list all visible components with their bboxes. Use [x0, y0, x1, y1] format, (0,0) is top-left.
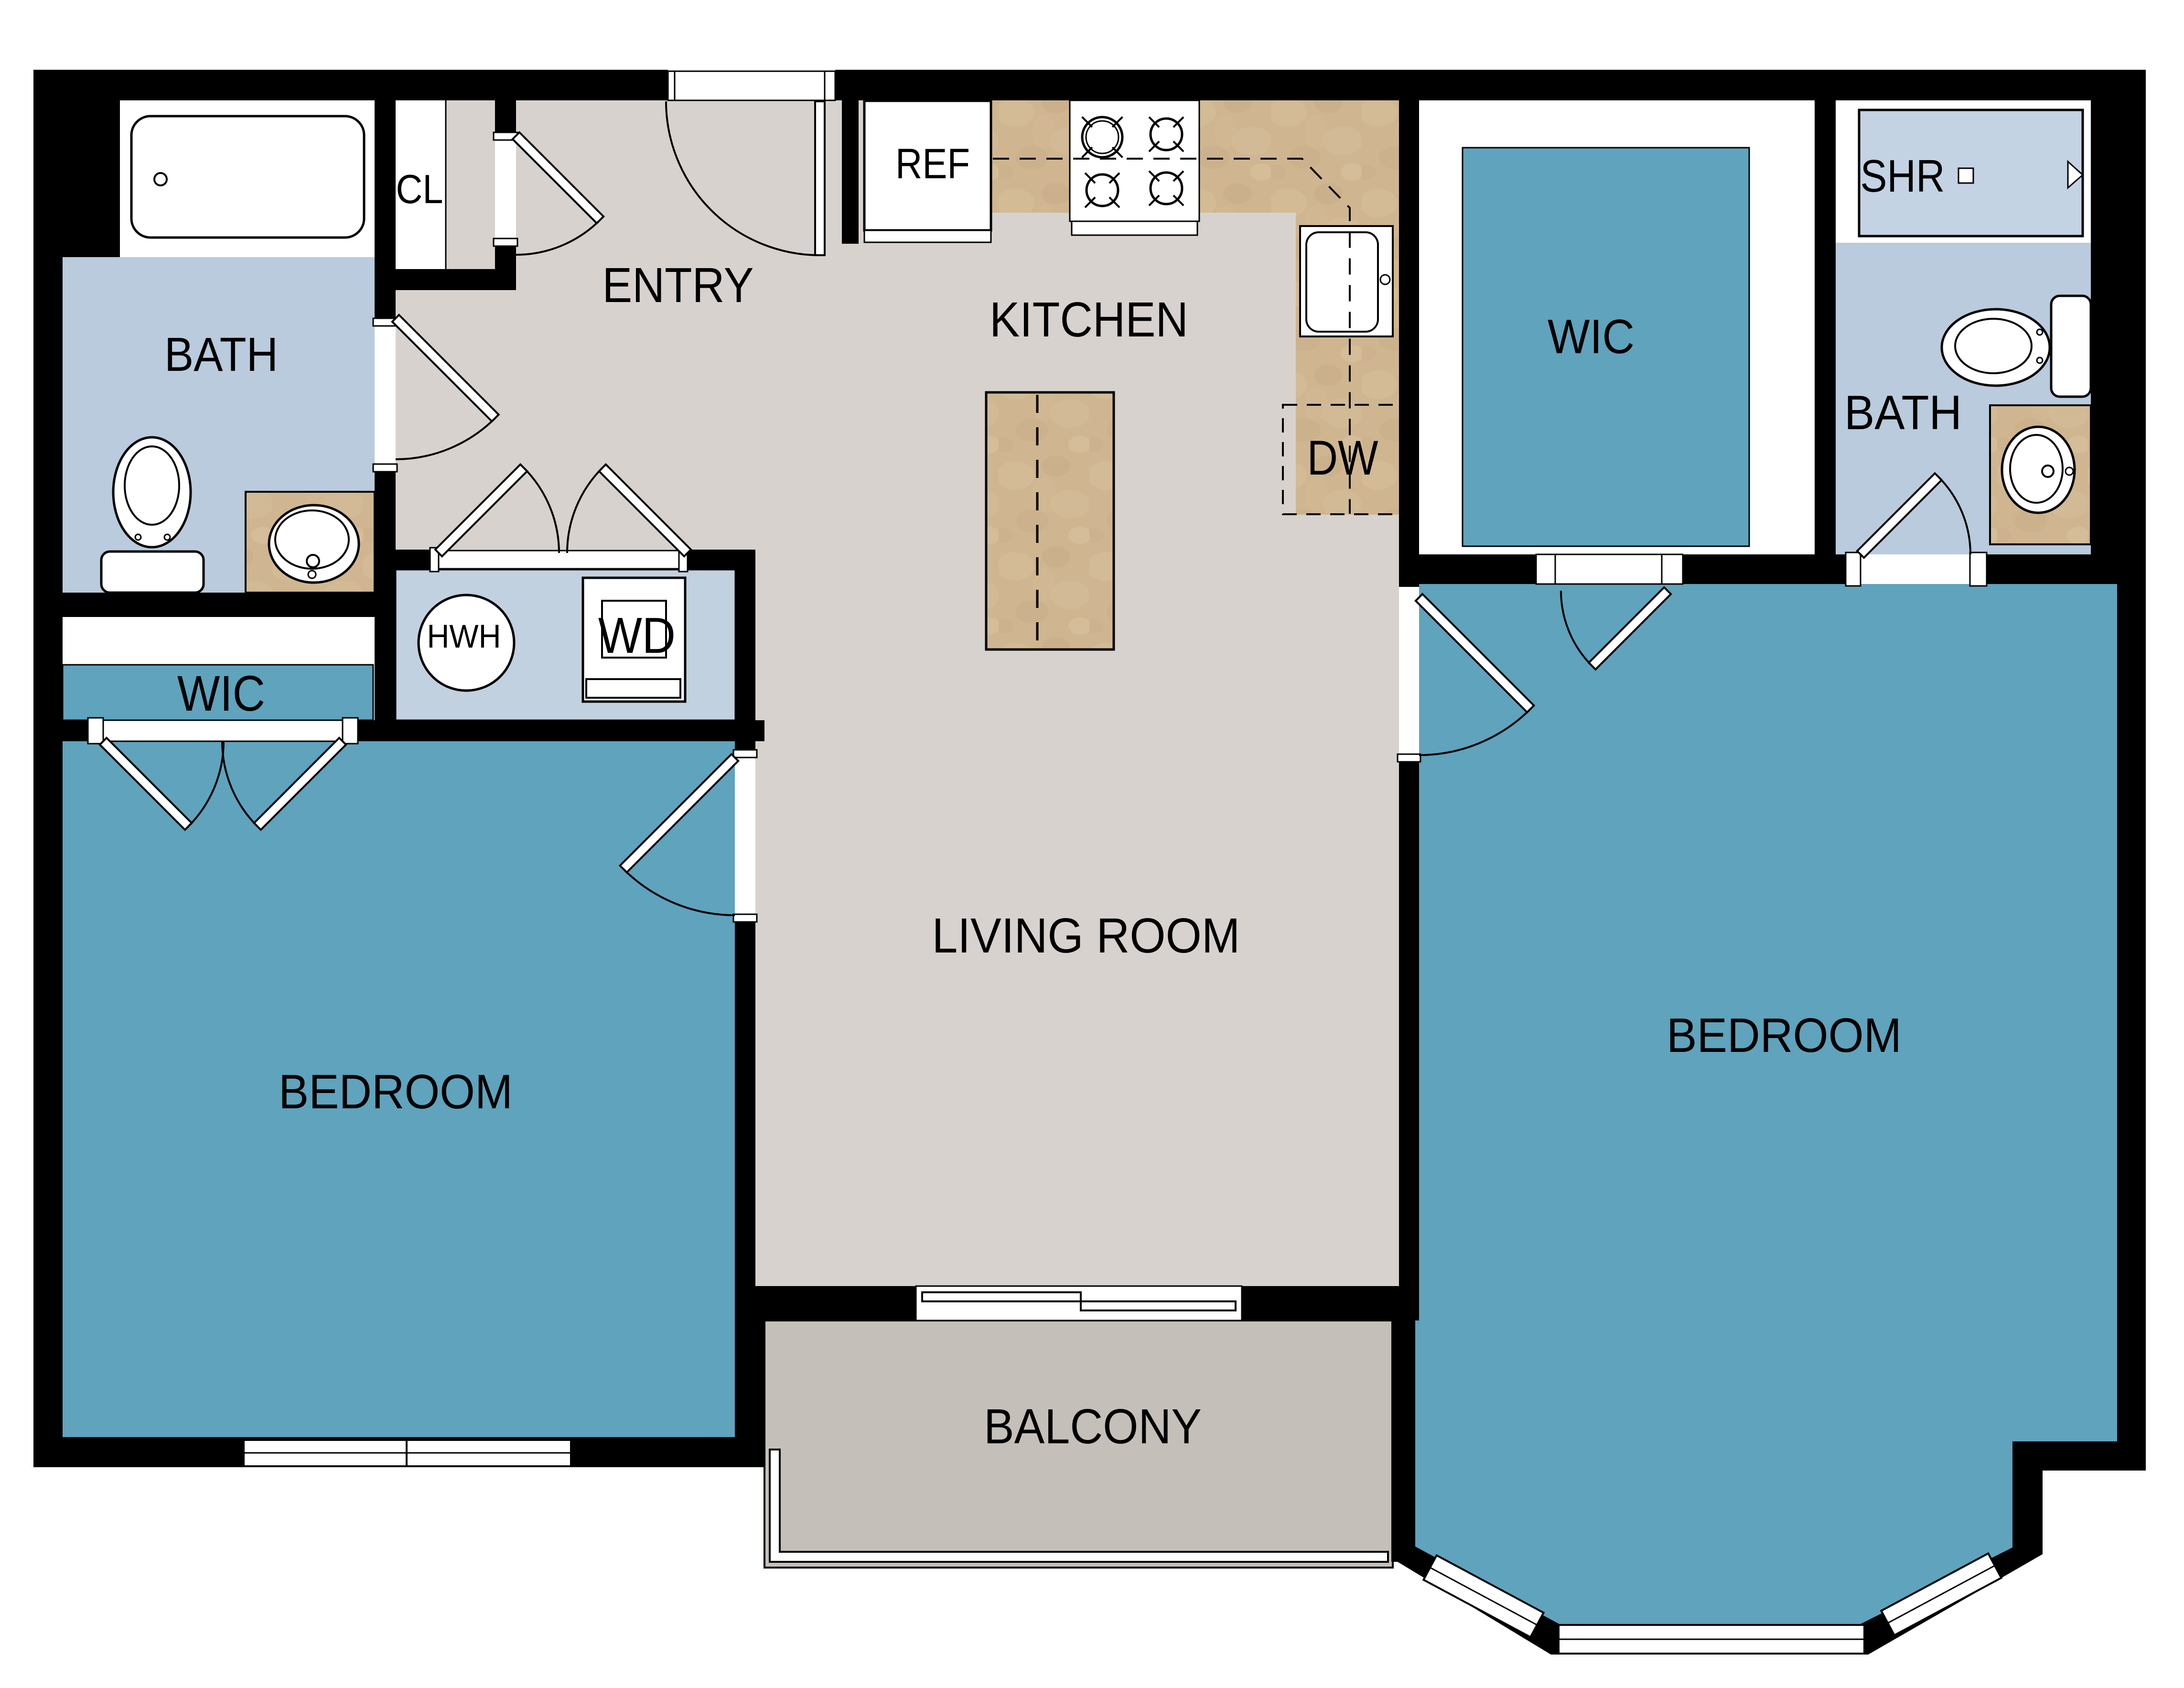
svg-text:ENTRY: ENTRY: [602, 258, 754, 313]
svg-text:BALCONY: BALCONY: [984, 1399, 1202, 1454]
svg-text:BATH: BATH: [164, 328, 278, 381]
svg-text:BEDROOM: BEDROOM: [1667, 1009, 1902, 1062]
svg-text:WIC: WIC: [177, 666, 265, 722]
svg-text:KITCHEN: KITCHEN: [990, 292, 1188, 347]
svg-text:REF: REF: [895, 140, 970, 187]
svg-text:HWH: HWH: [427, 618, 501, 655]
svg-text:LIVING ROOM: LIVING ROOM: [932, 908, 1240, 963]
svg-text:BEDROOM: BEDROOM: [279, 1065, 513, 1119]
svg-text:DW: DW: [1307, 431, 1378, 485]
svg-text:SHR: SHR: [1861, 151, 1945, 202]
svg-text:WIC: WIC: [1548, 310, 1635, 364]
svg-text:CL: CL: [396, 167, 443, 212]
svg-text:BATH: BATH: [1844, 386, 1962, 440]
svg-text:WD: WD: [598, 607, 676, 664]
